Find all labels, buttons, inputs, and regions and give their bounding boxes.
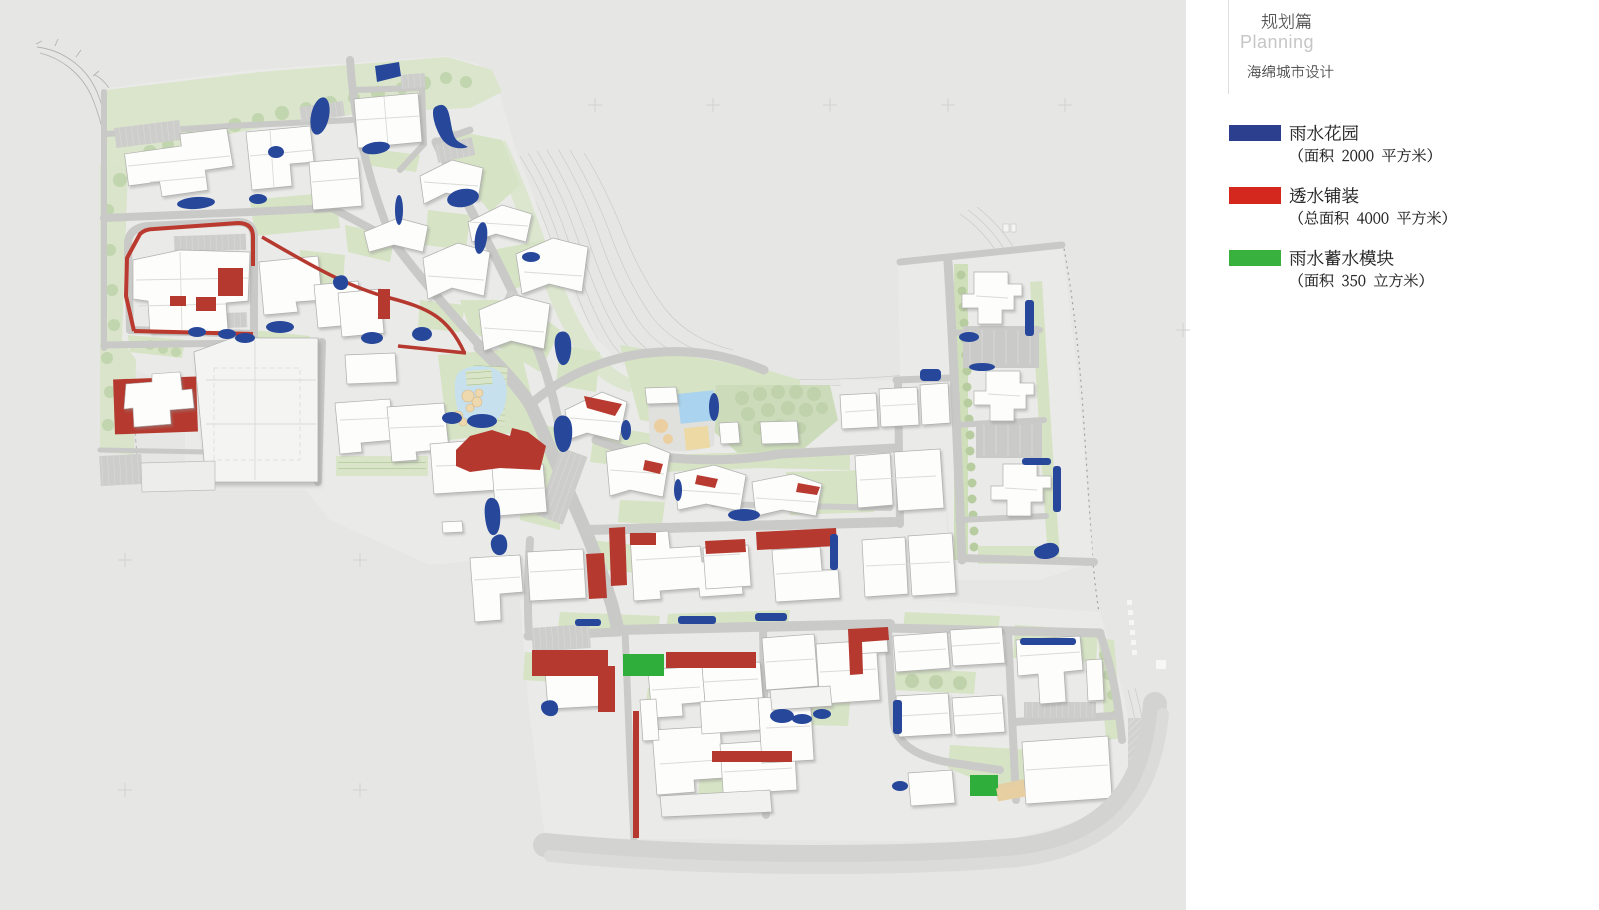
svg-text:Planning: Planning <box>1240 32 1314 52</box>
